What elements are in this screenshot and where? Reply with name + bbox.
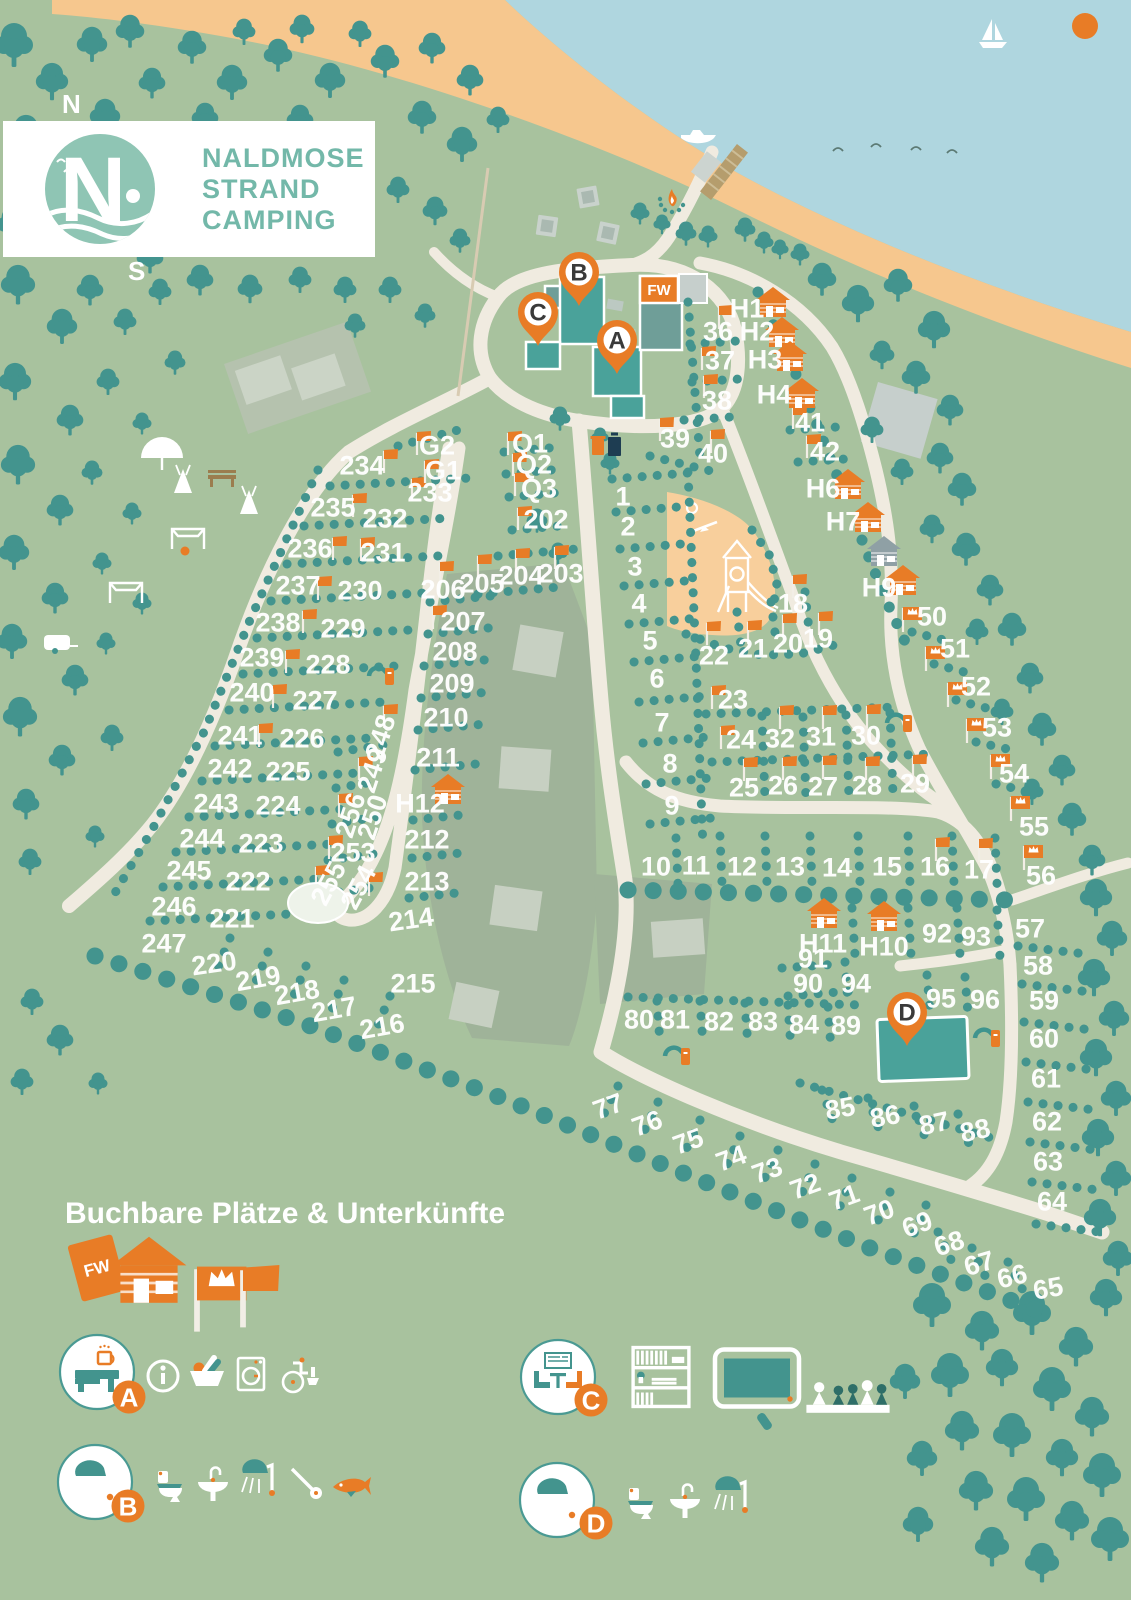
plot-label-226: 226 — [279, 723, 324, 753]
plot-label-Q3: Q3 — [521, 473, 557, 503]
plot-label-57: 57 — [1015, 913, 1045, 943]
plot-label-221: 221 — [209, 903, 254, 933]
ball-icon — [181, 547, 190, 556]
plot-label-10: 10 — [641, 851, 671, 881]
plot-label-31: 31 — [806, 721, 836, 751]
plot-label-212: 212 — [404, 824, 449, 854]
plot-label-53: 53 — [982, 712, 1012, 742]
plot-label-210: 210 — [423, 702, 468, 732]
cabin-label-H3: H3 — [748, 344, 783, 374]
plot-label-16: 16 — [920, 851, 950, 881]
plot-label-11: 11 — [682, 850, 711, 880]
logo-line-1: NALDMOSE — [202, 143, 365, 173]
plot-label-84: 84 — [789, 1009, 819, 1039]
plot-label-5: 5 — [642, 625, 657, 655]
plot-label-223: 223 — [238, 828, 283, 858]
facility-badge-letter-C: C — [582, 1386, 601, 1416]
plot-label-29: 29 — [900, 768, 930, 798]
plot-label-27: 27 — [808, 771, 838, 801]
logo-line-3: CAMPING — [202, 205, 337, 235]
pin-letter-C: C — [529, 299, 546, 326]
plot-label-22: 22 — [699, 640, 729, 670]
cabin-label-H10: H10 — [859, 931, 909, 961]
plot-label-91: 91 — [798, 943, 828, 973]
plot-label-215: 215 — [390, 968, 435, 998]
plot-label-227: 227 — [292, 685, 337, 715]
plot-label-59: 59 — [1029, 985, 1059, 1015]
pin-letter-D: D — [898, 999, 915, 1026]
plot-label-236: 236 — [287, 533, 332, 563]
cabin-label-H2: H2 — [740, 316, 775, 346]
plot-label-19: 19 — [803, 623, 833, 653]
pin-letter-B: B — [570, 259, 587, 286]
compass-north: N — [62, 89, 81, 119]
campsite-map-canvas: FW H1H2H3H4H6H7H9H10H11H12 1234567891011… — [0, 0, 1131, 1600]
plot-label-21: 21 — [738, 633, 768, 663]
plot-label-65: 65 — [1031, 1271, 1066, 1306]
plot-label-81: 81 — [660, 1004, 690, 1034]
fw-building-label: FW — [647, 282, 671, 299]
plot-label-41: 41 — [795, 407, 825, 437]
plot-label-208: 208 — [432, 636, 477, 666]
plot-label-93: 93 — [961, 921, 991, 951]
sun-icon — [1072, 13, 1098, 39]
plot-label-95: 95 — [926, 983, 956, 1013]
plot-label-32: 32 — [765, 723, 795, 753]
campsite-map: FW H1H2H3H4H6H7H9H10H11H12 1234567891011… — [0, 0, 1131, 1600]
facility-badge-letter-B: B — [119, 1492, 138, 1522]
cabin-label-H4: H4 — [757, 379, 792, 409]
plot-label-62: 62 — [1032, 1106, 1062, 1136]
cabin-label-H12: H12 — [395, 788, 445, 818]
plot-label-204: 204 — [498, 560, 543, 590]
plot-label-14: 14 — [822, 852, 852, 882]
plot-label-15: 15 — [872, 851, 902, 881]
plot-label-214: 214 — [387, 901, 436, 937]
plot-label-222: 222 — [225, 866, 270, 896]
plot-label-58: 58 — [1023, 950, 1053, 980]
plot-label-242: 242 — [207, 753, 252, 783]
plot-label-51: 51 — [940, 633, 970, 663]
cabin-label-H7: H7 — [826, 506, 861, 536]
compass-south: S — [128, 256, 145, 286]
plot-label-235: 235 — [310, 492, 355, 522]
plot-label-225: 225 — [265, 756, 310, 786]
compass-east: O — [171, 148, 191, 178]
plot-label-205: 205 — [459, 568, 504, 598]
plot-label-202: 202 — [523, 504, 568, 534]
plot-label-23: 23 — [718, 684, 748, 714]
plot-label-239: 239 — [239, 642, 284, 672]
picnic-table-icon — [536, 215, 559, 238]
plot-label-20: 20 — [773, 628, 803, 658]
plot-label-1: 1 — [615, 481, 630, 511]
plot-label-26: 26 — [768, 770, 798, 800]
plot-label-80: 80 — [624, 1004, 654, 1034]
plot-label-85: 85 — [823, 1091, 858, 1126]
plot-label-7: 7 — [654, 707, 669, 737]
plot-label-54: 54 — [999, 758, 1029, 788]
plot-label-82: 82 — [704, 1006, 734, 1036]
plot-label-206: 206 — [420, 574, 465, 604]
pool — [877, 1016, 969, 1081]
plot-label-83: 83 — [748, 1006, 778, 1036]
plot-label-52: 52 — [961, 671, 991, 701]
plot-label-24: 24 — [726, 724, 756, 754]
plot-label-92: 92 — [922, 918, 952, 948]
plot-label-8: 8 — [662, 748, 677, 778]
plot-label-28: 28 — [852, 770, 882, 800]
plot-label-86: 86 — [868, 1099, 903, 1134]
plot-label-230: 230 — [337, 575, 382, 605]
plot-label-36: 36 — [703, 316, 733, 346]
cabin-label-H9: H9 — [862, 572, 897, 602]
plot-label-50: 50 — [917, 601, 947, 631]
plot-label-56: 56 — [1026, 860, 1056, 890]
building-c — [526, 342, 560, 369]
plot-label-224: 224 — [255, 790, 300, 820]
plot-label-18: 18 — [778, 588, 808, 618]
plot-label-17: 17 — [964, 854, 994, 884]
plot-label-42: 42 — [810, 436, 840, 466]
plot-label-220: 220 — [190, 945, 239, 981]
picnic-table-icon — [596, 221, 620, 245]
plot-label-55: 55 — [1019, 811, 1049, 841]
building-a-annex — [611, 396, 644, 418]
plot-label-234: 234 — [339, 450, 384, 480]
plot-label-243: 243 — [193, 788, 238, 818]
plot-label-30: 30 — [851, 720, 881, 750]
plot-label-96: 96 — [970, 984, 1000, 1014]
plot-label-G2: G2 — [419, 430, 455, 460]
plot-label-61: 61 — [1031, 1063, 1061, 1093]
plot-label-238: 238 — [255, 607, 300, 637]
plot-label-94: 94 — [841, 968, 871, 998]
plot-label-3: 3 — [627, 551, 642, 581]
legend-title: Buchbare Plätze & Unterkünfte — [65, 1197, 505, 1230]
facility-badge-letter-A: A — [120, 1383, 139, 1413]
pin-letter-A: A — [608, 327, 625, 354]
plot-label-39: 39 — [660, 423, 690, 453]
plot-label-12: 12 — [727, 851, 757, 881]
plot-label-232: 232 — [362, 503, 407, 533]
plot-label-13: 13 — [775, 851, 805, 881]
plot-label-6: 6 — [649, 663, 664, 693]
plot-label-2: 2 — [620, 511, 635, 541]
plot-label-87: 87 — [916, 1106, 952, 1142]
gray-shed — [679, 274, 707, 303]
plot-label-231: 231 — [360, 537, 405, 567]
plot-label-9: 9 — [664, 790, 679, 820]
plot-label-203: 203 — [538, 558, 583, 588]
plot-label-228: 228 — [305, 649, 350, 679]
plot-label-63: 63 — [1033, 1146, 1063, 1176]
logo-line-2: STRAND — [202, 174, 321, 204]
plot-label-25: 25 — [729, 772, 759, 802]
plot-label-207: 207 — [440, 606, 485, 636]
plot-label-38: 38 — [702, 385, 732, 415]
plot-label-213: 213 — [404, 866, 449, 896]
plot-label-246: 246 — [151, 891, 196, 921]
plot-label-89: 89 — [831, 1010, 861, 1040]
plot-label-64: 64 — [1037, 1186, 1067, 1216]
facility-badge-letter-D: D — [587, 1509, 606, 1539]
plot-label-88: 88 — [957, 1113, 993, 1149]
plot-label-245: 245 — [166, 855, 211, 885]
plot-label-241: 241 — [217, 720, 262, 750]
plot-label-209: 209 — [429, 668, 474, 698]
plot-label-37: 37 — [705, 345, 735, 375]
plot-label-40: 40 — [698, 438, 728, 468]
plot-label-4: 4 — [631, 588, 646, 618]
compass-west: W — [20, 204, 45, 234]
plot-label-60: 60 — [1029, 1023, 1059, 1053]
plot-label-240: 240 — [229, 677, 274, 707]
plot-label-211: 211 — [416, 742, 460, 772]
plot-label-229: 229 — [320, 613, 365, 643]
picnic-table-icon — [576, 185, 599, 208]
plot-label-244: 244 — [179, 823, 224, 853]
cabin-label-H6: H6 — [806, 473, 841, 503]
plot-label-237: 237 — [275, 570, 320, 600]
plot-label-247: 247 — [141, 928, 186, 958]
